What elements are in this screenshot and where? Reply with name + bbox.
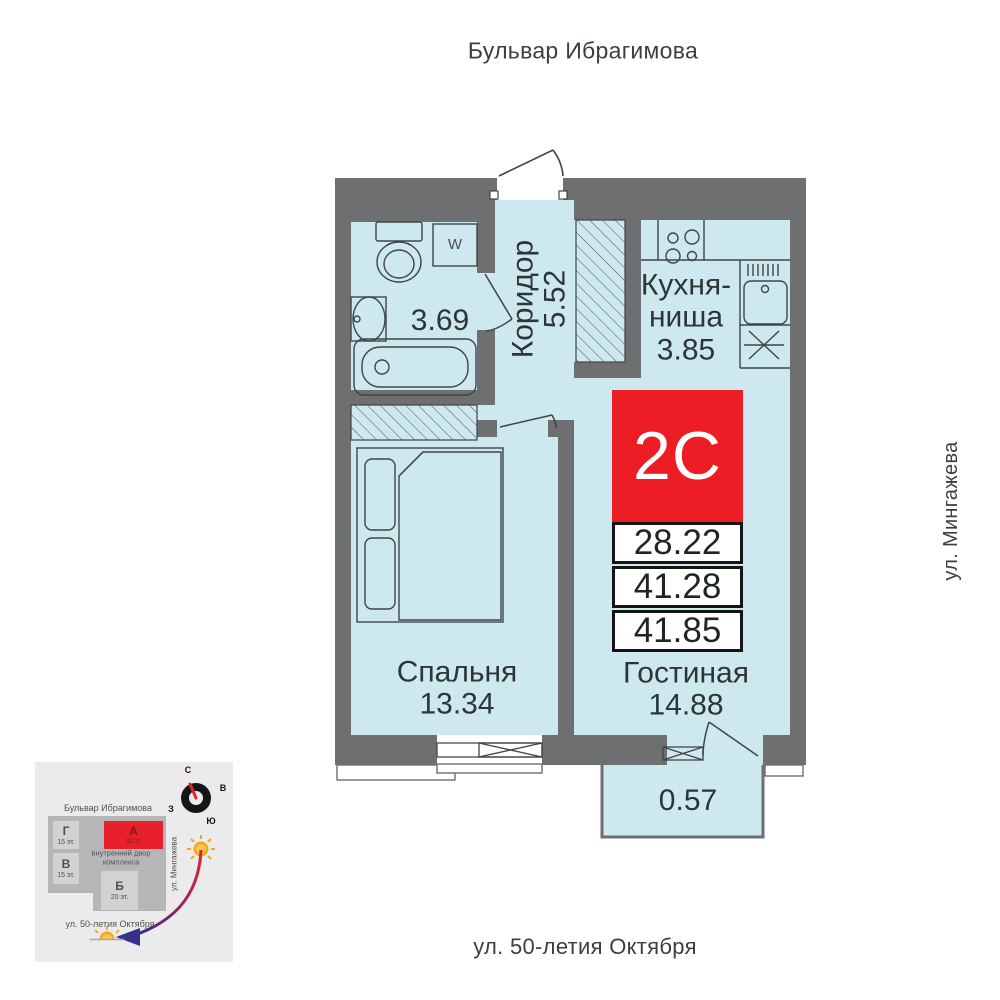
bathroom-area-label: 3.69 bbox=[411, 305, 469, 337]
closet-hatch bbox=[576, 220, 625, 362]
minimap-street-top: Бульвар Ибрагимова bbox=[64, 803, 152, 813]
washer-label: W bbox=[448, 237, 462, 253]
bedroom-window bbox=[437, 743, 542, 757]
building-a-label: А bbox=[129, 825, 138, 837]
compass-west: З bbox=[168, 804, 174, 814]
living-area: 14.88 bbox=[623, 690, 749, 722]
building-g-floors: 15 эт. bbox=[57, 839, 75, 846]
corridor-name: Коридор bbox=[508, 240, 540, 358]
living-name: Гостиная bbox=[623, 658, 749, 690]
kitchen-area: 3.85 bbox=[624, 334, 749, 366]
kitchen-name: Кухня-ниша bbox=[624, 269, 749, 334]
unit-type-badge: 2С bbox=[612, 390, 743, 522]
bedroom-label: Спальня 13.34 bbox=[397, 657, 518, 722]
building-g-label: Г bbox=[63, 825, 70, 837]
living-label: Гостиная 14.88 bbox=[623, 658, 749, 723]
building-g: Г 15 эт. bbox=[53, 821, 79, 849]
building-v-floors: 15 эт. bbox=[57, 872, 75, 879]
compass-north: С bbox=[185, 765, 192, 775]
bedroom-name: Спальня bbox=[397, 657, 518, 689]
corridor-area: 5.52 bbox=[540, 240, 572, 358]
wardrobe-hatch bbox=[351, 405, 477, 440]
street-label-right: ул. Мингажева bbox=[941, 441, 963, 580]
compass-east: В bbox=[220, 783, 227, 793]
bedroom-area: 13.34 bbox=[397, 689, 518, 721]
building-v-label: В bbox=[62, 858, 71, 870]
entrance-door bbox=[490, 150, 567, 199]
area-no-balcony-box: 41.28 bbox=[612, 566, 743, 608]
compass-icon bbox=[180, 782, 212, 814]
complex-notch bbox=[48, 893, 93, 911]
area-living-box: 28.22 bbox=[612, 522, 743, 564]
building-v: В 15 эт. bbox=[53, 853, 79, 884]
corridor-label: Коридор 5.52 bbox=[508, 240, 573, 358]
area-total-box: 41.85 bbox=[612, 610, 743, 652]
kitchen-label: Кухня-ниша 3.85 bbox=[624, 269, 749, 366]
compass-south: Ю bbox=[206, 816, 215, 826]
street-label-top: Бульвар Ибрагимова bbox=[468, 39, 698, 64]
unit-type-text: 2С bbox=[633, 417, 722, 495]
sunset-icon bbox=[86, 926, 128, 948]
floorplan-page: Бульвар Ибрагимова ул. Мингажева ул. 50-… bbox=[0, 0, 1000, 1000]
street-label-bottom: ул. 50-летия Октября bbox=[473, 935, 697, 959]
balcony-area-label: 0.57 bbox=[659, 785, 717, 817]
